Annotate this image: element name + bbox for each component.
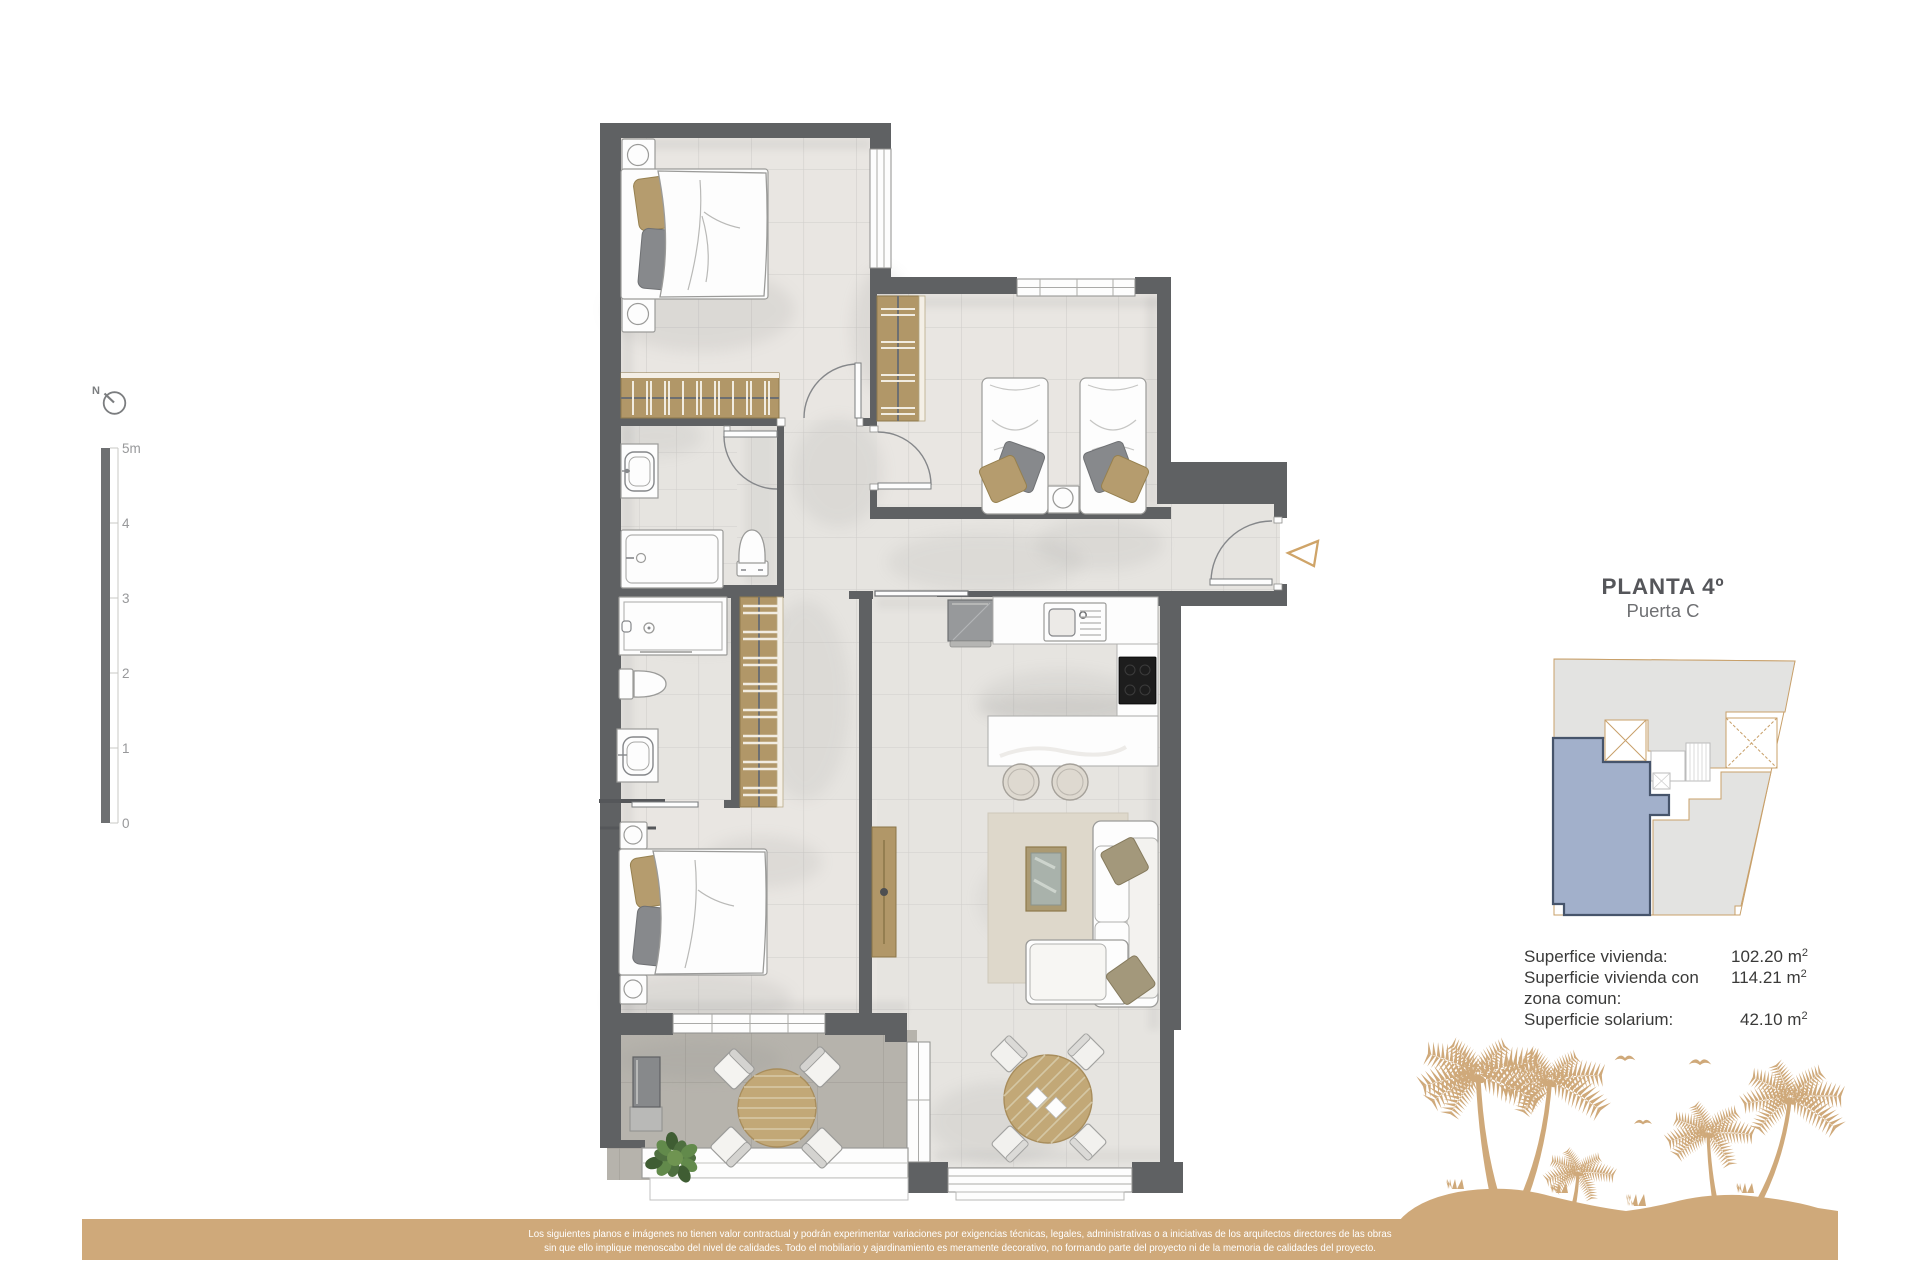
svg-text:3: 3 [122, 591, 130, 606]
svg-text:Superficie vivienda con: Superficie vivienda con [1524, 968, 1699, 987]
svg-text:2: 2 [122, 666, 130, 681]
svg-text:0: 0 [122, 816, 130, 831]
svg-text:N: N [92, 385, 100, 397]
svg-text:Los siguientes planos e imágen: Los siguientes planos e imágenes no tien… [528, 1229, 1391, 1240]
svg-text:102.20 m2: 102.20 m2 [1731, 947, 1808, 966]
svg-text:5m: 5m [122, 441, 141, 456]
svg-text:114.21 m2: 114.21 m2 [1731, 968, 1807, 987]
svg-text:4: 4 [122, 516, 130, 531]
svg-text:42.10 m2: 42.10 m2 [1740, 1010, 1808, 1029]
svg-text:sin que ello implique menoscab: sin que ello implique menoscabo del nive… [544, 1243, 1376, 1254]
svg-text:Superficie solarium:: Superficie solarium: [1524, 1010, 1673, 1029]
svg-text:Superfice vivienda:: Superfice vivienda: [1524, 947, 1668, 966]
svg-text:1: 1 [122, 741, 130, 756]
svg-text:Puerta C: Puerta C [1626, 600, 1699, 621]
svg-text:zona comun:: zona comun: [1524, 989, 1621, 1008]
svg-text:PLANTA 4º: PLANTA 4º [1602, 574, 1725, 599]
